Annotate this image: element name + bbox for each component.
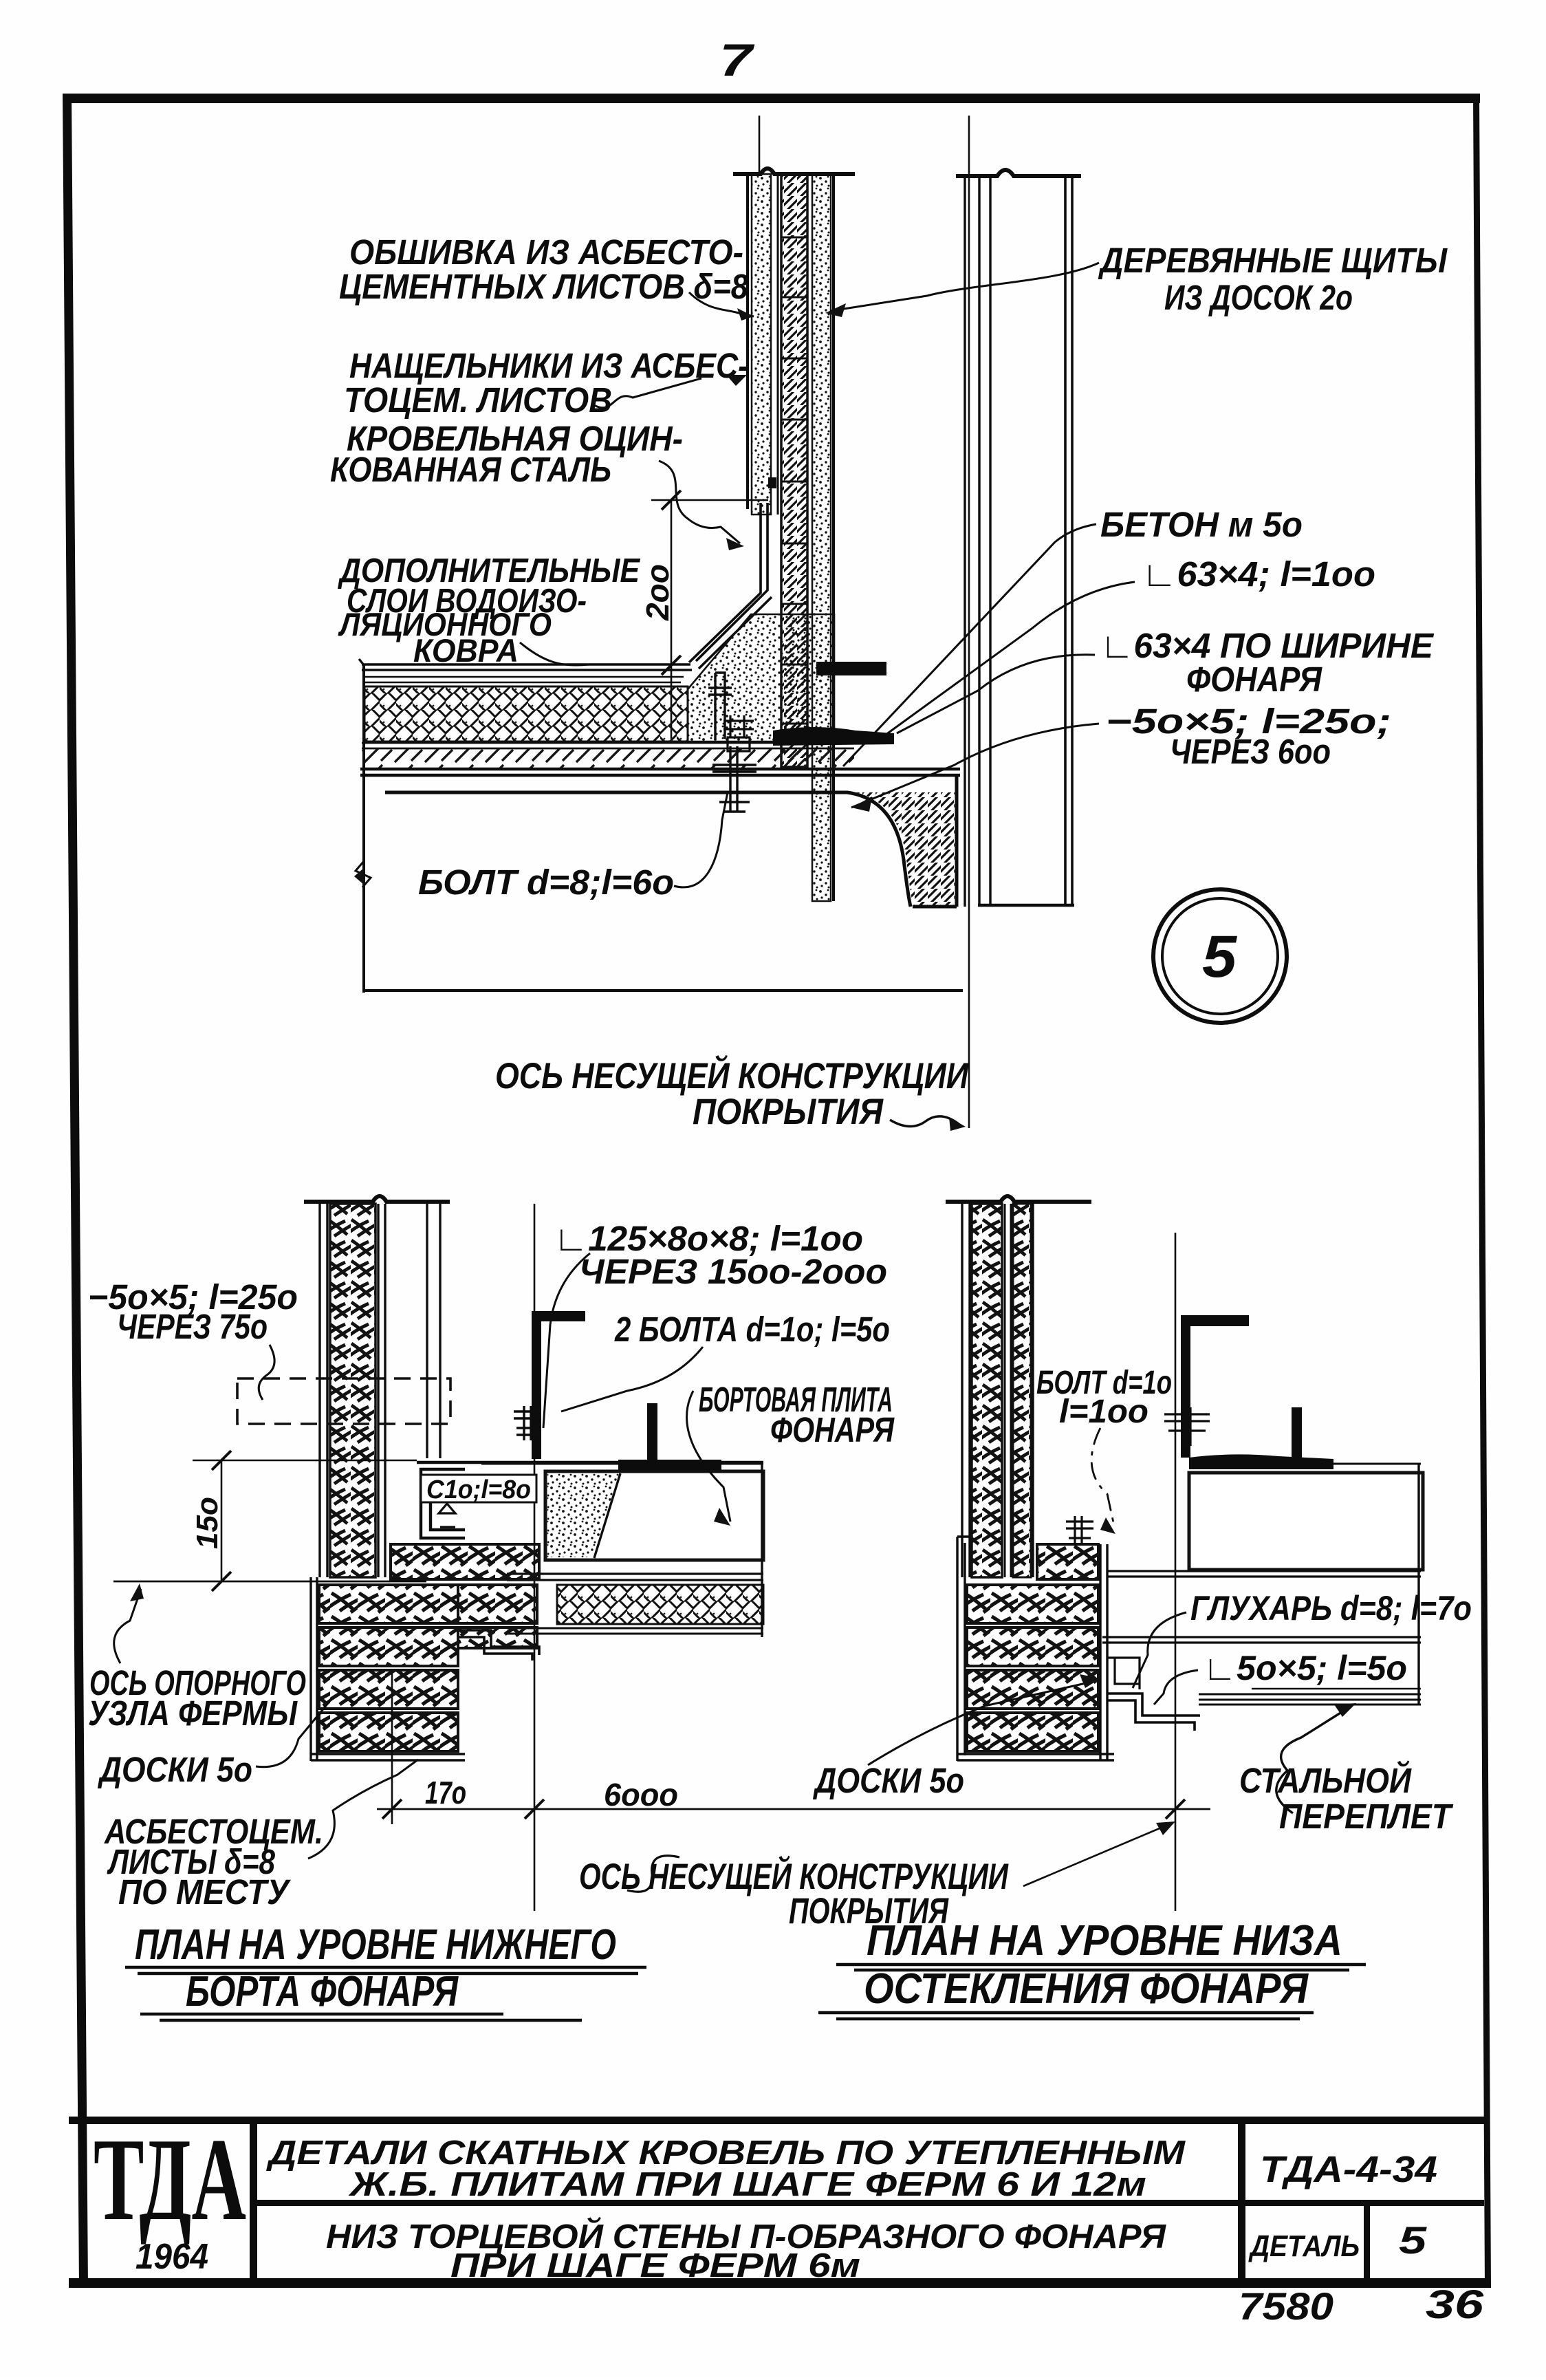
svg-text:∟63×4; l=1оо: ∟63×4; l=1оо bbox=[1142, 554, 1375, 594]
svg-text:Ж.Б. ПЛИТАМ ПРИ ШАГЕ ФЕРМ: Ж.Б. ПЛИТАМ ПРИ ШАГЕ ФЕРМ 6 И 12м bbox=[347, 2166, 1146, 2203]
svg-text:ДОСКИ 5о: ДОСКИ 5о bbox=[813, 1761, 964, 1800]
svg-text:ДЕТАЛЬ: ДЕТАЛЬ bbox=[1248, 2229, 1360, 2263]
svg-text:ПРИ ШАГЕ ФЕРМ 6м: ПРИ ШАГЕ ФЕРМ 6м bbox=[450, 2247, 860, 2284]
svg-text:СТАЛЬНОЙ: СТАЛЬНОЙ bbox=[1239, 1760, 1412, 1800]
svg-text:ПЛАН НА УРОВНЕ НИЖНЕГО: ПЛАН НА УРОВНЕ НИЖНЕГО bbox=[135, 1921, 616, 1969]
svg-text:ЧЕРЕЗ 15оо-2ооо: ЧЕРЕЗ 15оо-2ооо bbox=[579, 1252, 887, 1291]
svg-text:ПО МЕСТУ: ПО МЕСТУ bbox=[118, 1872, 291, 1912]
svg-text:7580: 7580 bbox=[1239, 2284, 1333, 2328]
svg-text:15о: 15о bbox=[190, 1497, 224, 1549]
svg-text:∟5о×5; l=5о: ∟5о×5; l=5о bbox=[1203, 1649, 1407, 1687]
svg-text:ОСЬ НЕСУЩЕЙ КОНСТРУКЦИИ: ОСЬ НЕСУЩЕЙ КОНСТРУКЦИИ bbox=[495, 1054, 970, 1096]
svg-text:ПЕРЕПЛЕТ: ПЕРЕПЛЕТ bbox=[1279, 1797, 1453, 1836]
svg-text:5: 5 bbox=[1399, 2218, 1427, 2262]
svg-text:ОСТЕКЛЕНИЯ ФОНАРЯ: ОСТЕКЛЕНИЯ ФОНАРЯ bbox=[864, 1965, 1309, 2013]
svg-text:ТДА: ТДА bbox=[94, 2114, 246, 2245]
svg-text:ИЗ ДОСОК 2о: ИЗ ДОСОК 2о bbox=[1164, 278, 1353, 317]
svg-text:ЦЕМЕНТНЫХ ЛИСТОВ δ=8: ЦЕМЕНТНЫХ ЛИСТОВ δ=8 bbox=[339, 267, 749, 306]
svg-text:С1о;l=8о: С1о;l=8о bbox=[426, 1475, 531, 1504]
svg-text:БОРТА ФОНАРЯ: БОРТА ФОНАРЯ bbox=[186, 1968, 459, 2015]
svg-text:ОБШИВКА ИЗ АСБЕСТО-: ОБШИВКА ИЗ АСБЕСТО- bbox=[349, 232, 743, 272]
svg-text:l=1оо: l=1оо bbox=[1059, 1394, 1148, 1430]
svg-text:ЧЕРЕЗ 75о: ЧЕРЕЗ 75о bbox=[117, 1307, 268, 1346]
svg-text:7: 7 bbox=[719, 34, 755, 85]
svg-text:ДЕРЕВЯННЫЕ ЩИТЫ: ДЕРЕВЯННЫЕ ЩИТЫ bbox=[1098, 241, 1448, 280]
svg-text:КОВАННАЯ СТАЛЬ: КОВАННАЯ СТАЛЬ bbox=[330, 450, 611, 489]
svg-text:ДОСКИ 5о: ДОСКИ 5о bbox=[98, 1750, 252, 1789]
svg-text:ФОНАРЯ: ФОНАРЯ bbox=[1186, 660, 1323, 699]
svg-text:ТДА-4-34: ТДА-4-34 bbox=[1260, 2149, 1437, 2190]
svg-text:ПОКРЫТИЯ: ПОКРЫТИЯ bbox=[693, 1092, 884, 1132]
svg-text:НАЩЕЛЬНИКИ ИЗ АСБЕС-: НАЩЕЛЬНИКИ ИЗ АСБЕС- bbox=[349, 346, 748, 385]
svg-text:ФОНАРЯ: ФОНАРЯ bbox=[770, 1410, 895, 1449]
svg-text:ТОЦЕМ. ЛИСТОВ: ТОЦЕМ. ЛИСТОВ bbox=[344, 380, 612, 420]
svg-text:ПЛАН НА УРОВНЕ НИЗА: ПЛАН НА УРОВНЕ НИЗА bbox=[867, 1917, 1342, 1965]
svg-text:ГЛУХАРЬ d=8; l=7о: ГЛУХАРЬ d=8; l=7о bbox=[1190, 1589, 1472, 1627]
svg-text:2 БОЛТА d=1о; l=5о: 2 БОЛТА d=1о; l=5о bbox=[614, 1310, 890, 1349]
svg-text:17о: 17о bbox=[425, 1775, 466, 1810]
svg-text:6ооо: 6ооо bbox=[604, 1777, 678, 1813]
svg-text:2оо: 2оо bbox=[640, 564, 675, 621]
svg-text:УЗЛА ФЕРМЫ: УЗЛА ФЕРМЫ bbox=[88, 1694, 298, 1733]
svg-text:ЧЕРЕЗ 6оо: ЧЕРЕЗ 6оо bbox=[1170, 732, 1331, 771]
svg-text:КОВРА: КОВРА bbox=[413, 632, 519, 669]
svg-text:5: 5 bbox=[1202, 924, 1237, 990]
svg-text:БЕТОН м 5о: БЕТОН м 5о bbox=[1100, 505, 1303, 544]
svg-text:36: 36 bbox=[1426, 2282, 1484, 2327]
svg-text:БОЛТ d=8;l=6о: БОЛТ d=8;l=6о bbox=[418, 863, 674, 902]
svg-text:1964: 1964 bbox=[135, 2237, 208, 2277]
